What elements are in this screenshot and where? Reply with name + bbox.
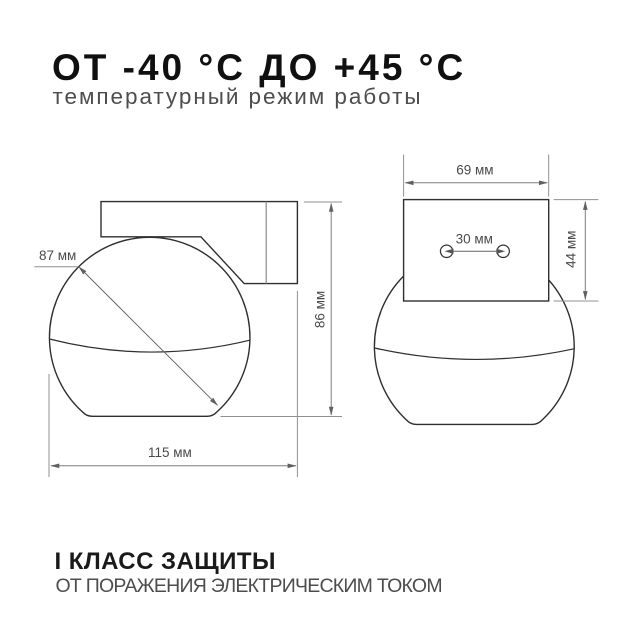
svg-text:69 мм: 69 мм: [456, 163, 493, 178]
svg-text:115 мм: 115 мм: [148, 445, 192, 460]
svg-text:86 мм: 86 мм: [312, 291, 327, 328]
svg-text:44 мм: 44 мм: [563, 231, 578, 268]
svg-text:87 мм: 87 мм: [39, 248, 76, 263]
svg-text:30 мм: 30 мм: [456, 231, 493, 246]
